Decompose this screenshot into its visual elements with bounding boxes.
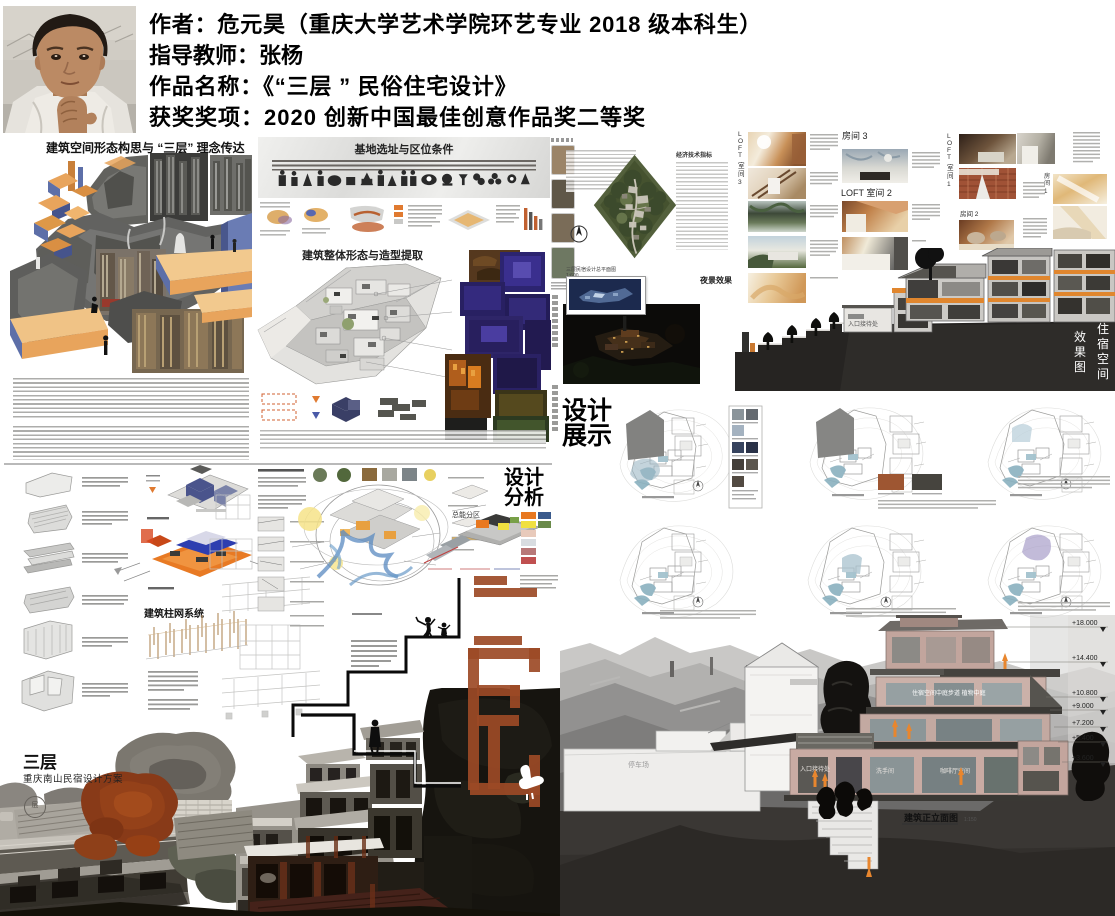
- svg-text:O: O: [738, 138, 743, 145]
- svg-text:+3.600: +3.600: [1072, 755, 1094, 762]
- svg-text:+9.000: +9.000: [1072, 703, 1094, 710]
- svg-text:+7.200: +7.200: [1072, 720, 1094, 727]
- svg-text:停车场: 停车场: [628, 760, 649, 769]
- svg-text:1: 1: [947, 181, 951, 188]
- svg-text:间: 间: [738, 170, 745, 178]
- svg-text:T: T: [738, 152, 742, 159]
- svg-text:建筑正立面图: 建筑正立面图: [904, 812, 958, 823]
- svg-text:F: F: [738, 145, 742, 152]
- svg-text:入口接待处: 入口接待处: [848, 320, 878, 328]
- svg-text:总能分区: 总能分区: [452, 510, 480, 519]
- svg-text:咖啡厅空间: 咖啡厅空间: [940, 767, 970, 775]
- svg-text:房间 2: 房间 2: [960, 209, 979, 218]
- svg-text:O: O: [947, 140, 952, 147]
- svg-text:L: L: [947, 133, 951, 140]
- svg-text:1:150: 1:150: [964, 817, 977, 823]
- svg-text:住宿空间中庭步道 植物中庭: 住宿空间中庭步道 植物中庭: [912, 689, 986, 697]
- svg-text:+14.400: +14.400: [1072, 655, 1098, 662]
- svg-text:+10.800: +10.800: [1072, 690, 1098, 697]
- svg-text:+18.000: +18.000: [1072, 620, 1098, 627]
- svg-text:房: 房: [1044, 172, 1050, 180]
- svg-text:T: T: [947, 154, 951, 161]
- svg-text:建筑柱网系统: 建筑柱网系统: [143, 607, 204, 620]
- svg-text:室: 室: [947, 163, 954, 172]
- svg-text:LOFT 室间 2: LOFT 室间 2: [841, 187, 892, 198]
- svg-text:+5.400: +5.400: [1072, 735, 1094, 742]
- svg-text:F: F: [947, 147, 951, 154]
- svg-text:间: 间: [947, 172, 954, 180]
- svg-text:洗手间: 洗手间: [876, 767, 894, 775]
- svg-text:房间 3: 房间 3: [842, 130, 868, 141]
- svg-text:室: 室: [738, 161, 745, 170]
- svg-text:L: L: [738, 131, 742, 138]
- svg-text:3: 3: [738, 179, 742, 186]
